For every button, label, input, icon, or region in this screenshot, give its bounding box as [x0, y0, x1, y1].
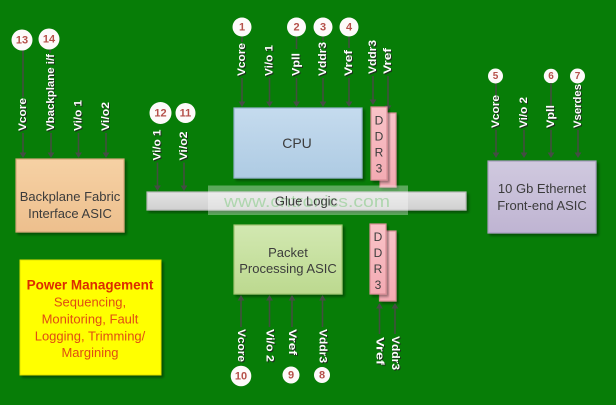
svg-text:12: 12: [154, 108, 166, 120]
svg-text:9: 9: [288, 370, 294, 382]
svg-text:3: 3: [375, 278, 382, 292]
svg-text:5: 5: [493, 71, 499, 82]
svg-text:1: 1: [239, 22, 245, 34]
svg-text:Vi/o 1: Vi/o 1: [73, 100, 85, 131]
svg-text:11: 11: [180, 108, 192, 120]
svg-text:Front-end ASIC: Front-end ASIC: [497, 198, 587, 213]
svg-text:D: D: [375, 114, 384, 128]
svg-text:3: 3: [320, 22, 326, 34]
svg-text:3: 3: [376, 162, 383, 176]
svg-text:14: 14: [43, 34, 56, 46]
svg-text:Vserdes: Vserdes: [572, 84, 584, 128]
svg-text:Interface ASIC: Interface ASIC: [28, 206, 112, 221]
svg-text:Sequencing,: Sequencing,: [54, 295, 126, 310]
svg-text:Vddr3: Vddr3: [389, 336, 401, 370]
svg-text:Processing ASIC: Processing ASIC: [239, 261, 337, 276]
svg-text:Vddr3: Vddr3: [367, 40, 379, 74]
svg-text:Logging, Trimming/: Logging, Trimming/: [35, 329, 146, 344]
svg-text:Margining: Margining: [61, 345, 118, 360]
svg-text:2: 2: [293, 22, 299, 34]
svg-text:Vddr3: Vddr3: [317, 42, 329, 76]
svg-text:4: 4: [346, 22, 353, 34]
svg-text:Vbackplane i/f: Vbackplane i/f: [45, 54, 57, 131]
svg-text:Vi/o2: Vi/o2: [178, 132, 190, 161]
svg-text:R: R: [374, 262, 383, 276]
svg-text:Power Management: Power Management: [27, 278, 154, 293]
svg-text:Vi/o2: Vi/o2: [100, 102, 112, 131]
svg-text:Packet: Packet: [268, 245, 308, 260]
svg-text:Glue Logic: Glue Logic: [275, 194, 338, 209]
svg-text:Vpll: Vpll: [291, 53, 303, 76]
svg-text:13: 13: [16, 35, 28, 47]
svg-text:Backplane Fabric: Backplane Fabric: [20, 189, 121, 204]
svg-text:Vref: Vref: [286, 329, 298, 355]
svg-text:D: D: [375, 130, 384, 144]
svg-text:Vcore: Vcore: [17, 98, 29, 131]
svg-text:Vi/o 2: Vi/o 2: [518, 97, 530, 128]
svg-text:R: R: [375, 146, 384, 160]
svg-text:Vi/o 1: Vi/o 1: [152, 130, 164, 161]
svg-text:6: 6: [548, 71, 554, 82]
svg-text:10 Gb Ethernet: 10 Gb Ethernet: [498, 181, 587, 196]
svg-text:Vref: Vref: [343, 50, 355, 76]
svg-text:Vi/o 2: Vi/o 2: [264, 329, 276, 362]
svg-text:Vref: Vref: [382, 48, 394, 74]
svg-text:Vcore: Vcore: [490, 95, 502, 128]
svg-text:10: 10: [235, 371, 247, 383]
svg-text:Vcore: Vcore: [236, 43, 248, 76]
svg-text:Vi/o 1: Vi/o 1: [264, 45, 276, 76]
svg-text:D: D: [374, 230, 383, 244]
svg-text:7: 7: [575, 71, 581, 82]
svg-text:D: D: [374, 246, 383, 260]
svg-text:Vddr3: Vddr3: [317, 329, 329, 363]
svg-text:Vpll: Vpll: [545, 105, 557, 128]
svg-text:Vcore: Vcore: [235, 329, 247, 362]
svg-text:CPU: CPU: [282, 135, 312, 151]
svg-text:8: 8: [319, 370, 325, 382]
svg-text:Vref: Vref: [374, 337, 386, 365]
svg-text:Monitoring, Fault: Monitoring, Fault: [42, 312, 139, 327]
